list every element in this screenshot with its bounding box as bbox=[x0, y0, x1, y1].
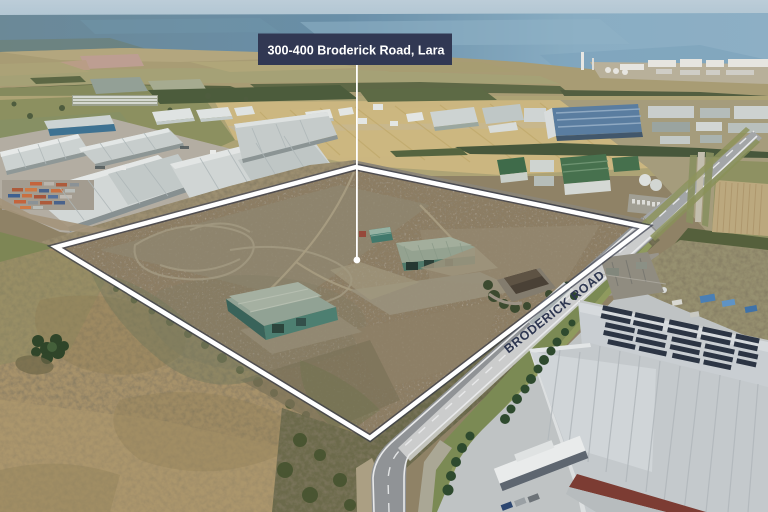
svg-text:300-400 Broderick Road, Lara: 300-400 Broderick Road, Lara bbox=[268, 43, 446, 58]
